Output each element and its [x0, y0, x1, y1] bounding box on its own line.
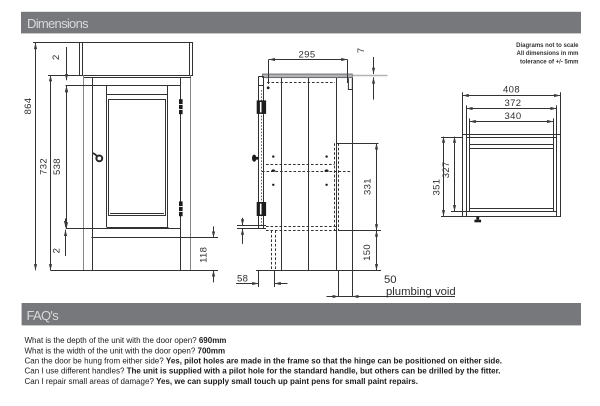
svg-text:327: 327	[441, 161, 452, 178]
svg-text:Dimensions: Dimensions	[27, 16, 89, 31]
svg-text:150: 150	[362, 244, 373, 261]
svg-text:2: 2	[52, 248, 63, 254]
svg-text:Can I repair small areas of da: Can I repair small areas of damage? Yes,…	[25, 377, 418, 386]
svg-text:What is the depth of the unit: What is the depth of the unit with the d…	[25, 336, 227, 345]
svg-text:50: 50	[384, 274, 397, 286]
svg-text:What is the width of the unit: What is the width of the unit with the d…	[25, 346, 226, 355]
svg-text:118: 118	[199, 247, 210, 263]
svg-text:58: 58	[237, 273, 248, 284]
svg-text:732: 732	[38, 158, 49, 175]
svg-text:864: 864	[23, 98, 34, 115]
svg-text:All dimensions in mm: All dimensions in mm	[516, 51, 578, 57]
svg-text:331: 331	[363, 178, 374, 195]
svg-text:295: 295	[299, 50, 316, 61]
svg-text:Diagrams not to scale: Diagrams not to scale	[516, 43, 579, 49]
svg-text:372: 372	[504, 98, 521, 109]
svg-text:351: 351	[432, 179, 443, 196]
svg-text:340: 340	[505, 111, 522, 122]
svg-text:plumbing void: plumbing void	[386, 286, 456, 298]
svg-text:538: 538	[52, 158, 63, 175]
svg-text:Can the door be hung from eith: Can the door be hung from either side? Y…	[25, 357, 503, 366]
svg-text:tolerance of +/- 5mm: tolerance of +/- 5mm	[520, 60, 579, 66]
svg-text:Can I use different handles? T: Can I use different handles? The unit is…	[25, 367, 501, 376]
svg-text:2: 2	[51, 54, 62, 60]
svg-text:408: 408	[503, 85, 520, 96]
svg-text:FAQ's: FAQ's	[27, 308, 60, 323]
svg-text:7: 7	[356, 47, 367, 53]
